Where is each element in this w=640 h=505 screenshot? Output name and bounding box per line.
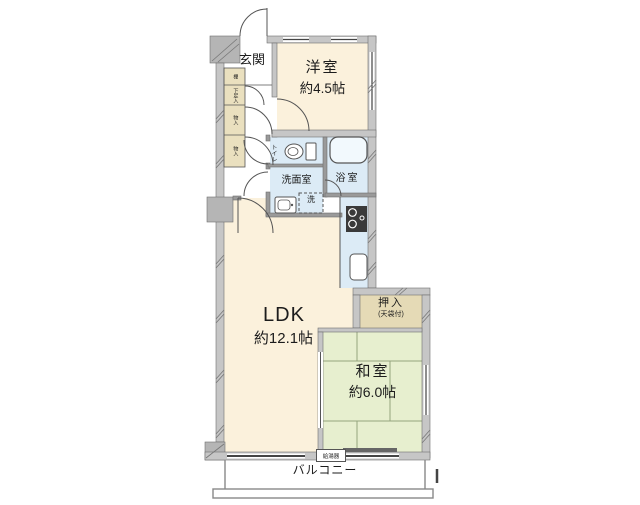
wash-basin-icon: [275, 197, 296, 213]
washroom-door: [244, 172, 268, 196]
wall-left: [216, 63, 224, 442]
western-room-label: 洋室: [277, 59, 368, 76]
wall-step: [353, 288, 430, 295]
wall-oshiire-left: [353, 295, 360, 328]
wall-left-pillar: [207, 197, 233, 222]
storage-closet-lower-label: 物入: [227, 137, 242, 165]
toilet-door: [244, 140, 268, 164]
window-yoshitsu-top-2: [331, 37, 357, 42]
oshiire-note: (天袋付): [360, 311, 422, 319]
washer-label: 洗: [299, 195, 323, 204]
kitchen-sink-icon: [350, 254, 367, 280]
floor-plan: 玄関 洋室 約4.5帖 トイレ 浴室 洗面室 洗 LDK 約12.1帖 押入 (…: [0, 0, 640, 505]
window-yoshitsu-top-1: [283, 37, 309, 42]
storage-door-1: [245, 86, 264, 105]
wall-yoshitsu-bottom: [272, 130, 376, 137]
entrance-door: [240, 8, 267, 36]
storage-door-2: [245, 107, 272, 134]
entrance-label: 玄関: [239, 53, 265, 68]
window-washitsu-right: [424, 365, 429, 415]
oshiire-label: 押入: [360, 297, 422, 310]
wall-wash-bottom: [266, 213, 342, 217]
washroom-label: 洗面室: [270, 175, 323, 187]
window-yoshitsu-right: [370, 52, 375, 110]
storage-shoebox-label: 下足入: [227, 86, 242, 104]
water-heater-label: 給湯器: [323, 452, 340, 460]
japanese-room-label: 和室: [323, 363, 422, 380]
balcony-outer-rail: [213, 489, 433, 498]
water-heater-box: 給湯器: [316, 449, 346, 462]
toilet-label: トイレ: [268, 139, 277, 166]
japanese-room-size: 約6.0帖: [323, 384, 422, 400]
bathtub-icon: [330, 137, 367, 163]
ldk-size: 約12.1帖: [226, 330, 341, 347]
bath-label: 浴室: [327, 173, 368, 185]
wall-toilet-bath: [323, 137, 327, 197]
window-ldk-bottom: [227, 454, 305, 459]
wall-bath-bottom: [325, 193, 376, 197]
western-room-size: 約4.5帖: [277, 81, 368, 97]
storage-closet-upper-label: 物入: [227, 107, 242, 133]
storage-shelf-label: 棚: [227, 70, 242, 83]
balcony-label: バルコニー: [225, 464, 425, 478]
stove-icon: [346, 206, 367, 232]
ldk-label: LDK: [230, 304, 338, 327]
